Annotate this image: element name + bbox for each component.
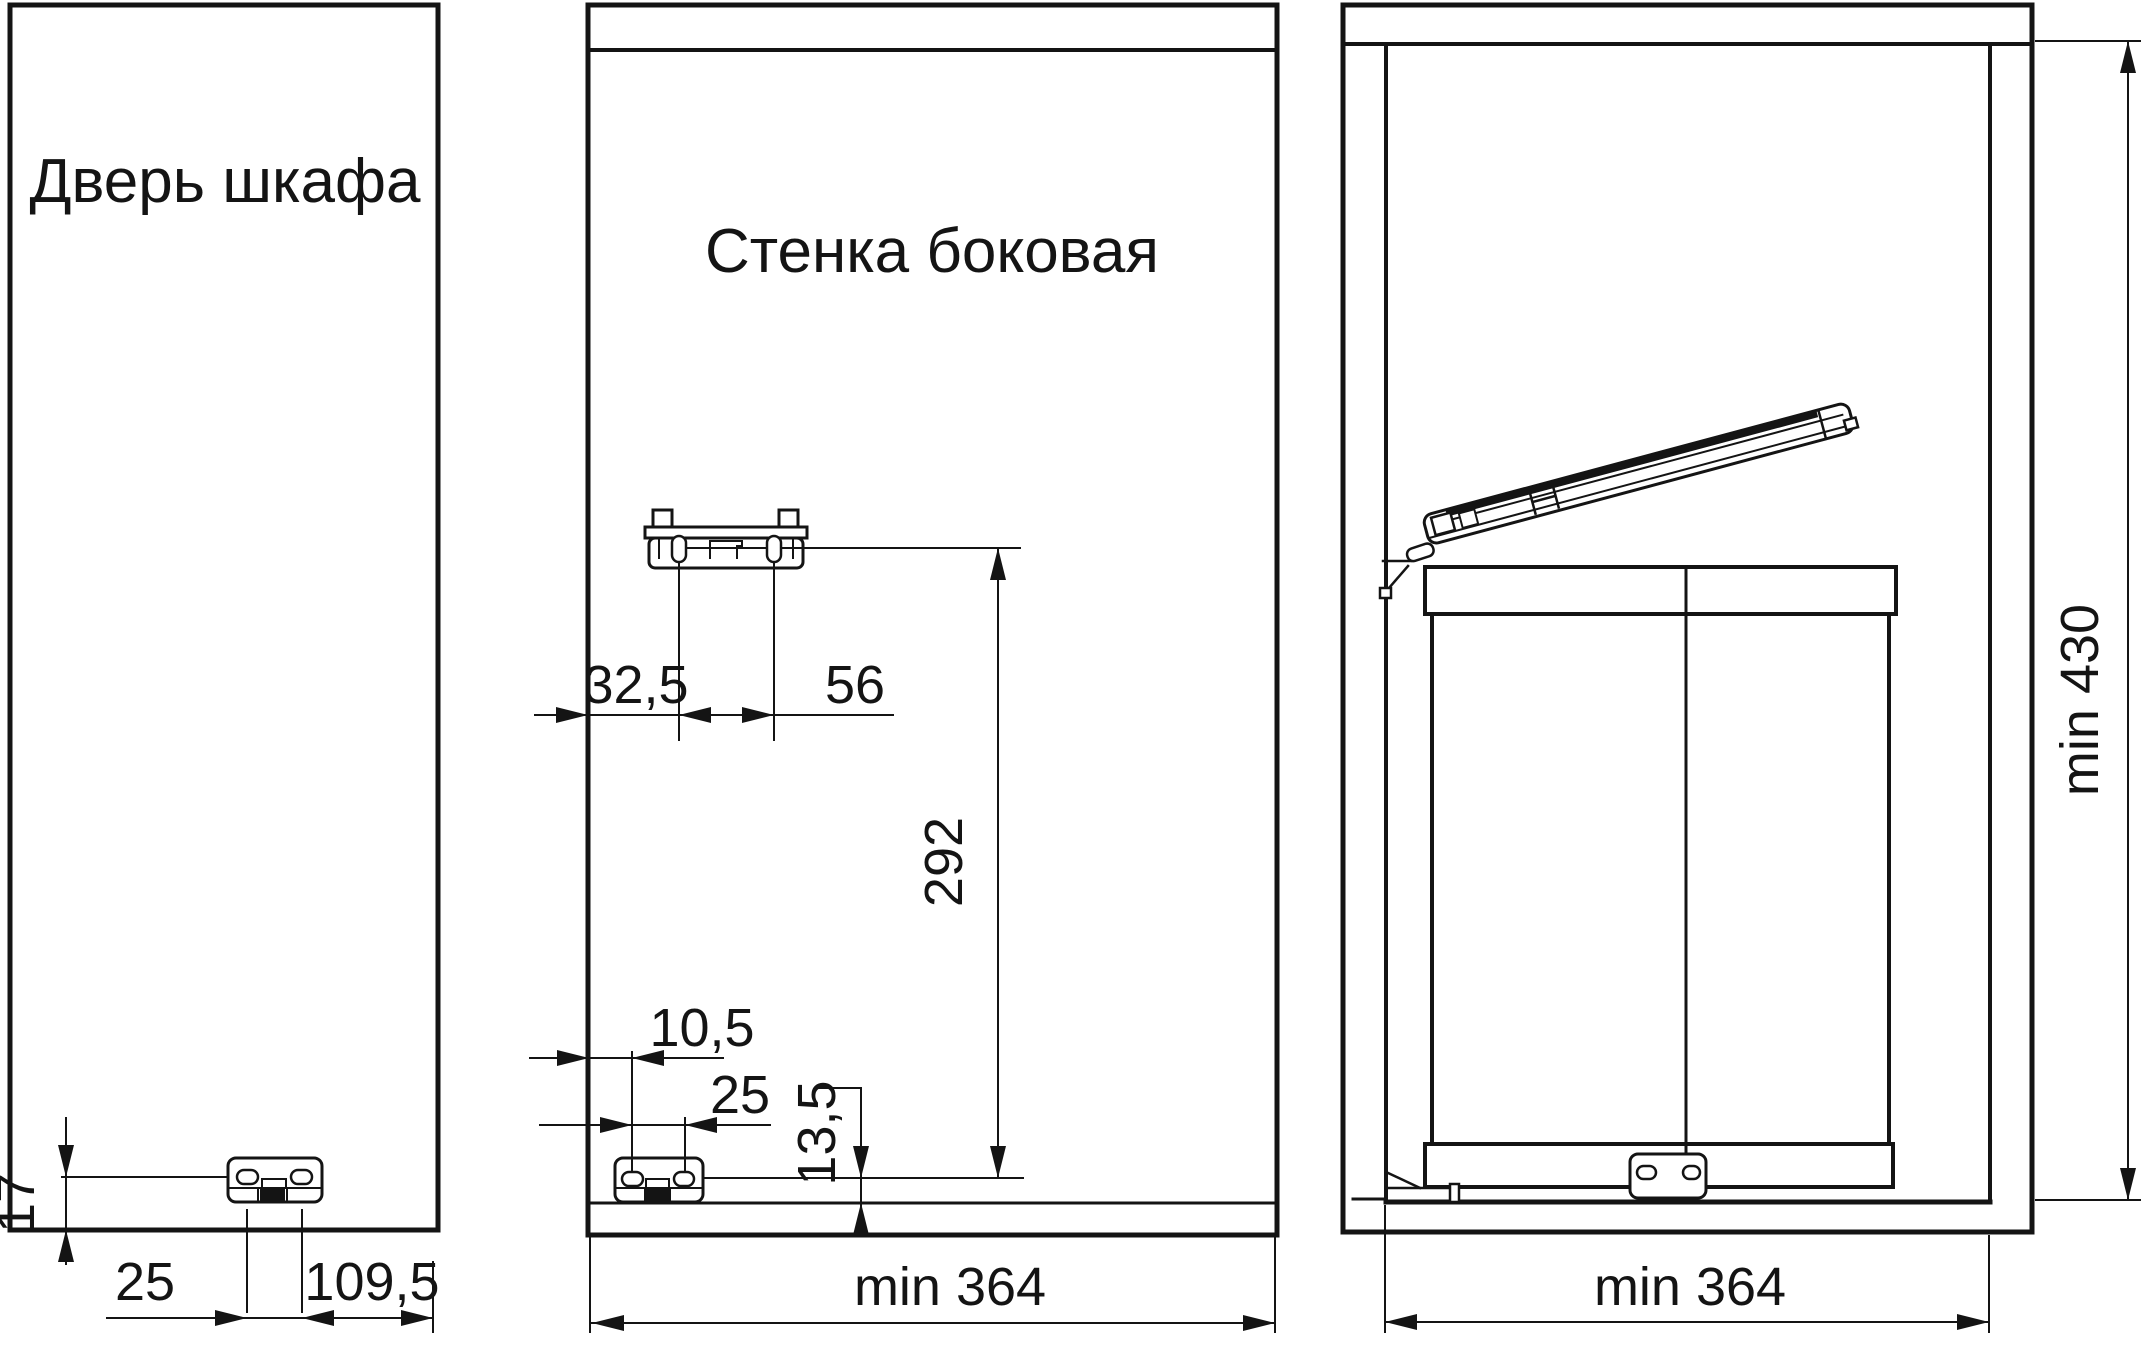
dimension-min364-side: min 364 <box>590 1238 1275 1332</box>
lid-hinge-block <box>1431 513 1455 536</box>
door-panel-view: Дверь шкафа 17 <box>0 5 440 1332</box>
dimension-25-side-label: 25 <box>710 1065 770 1125</box>
lower-bracket-hole-right <box>674 1172 694 1186</box>
dimension-292: 292 <box>914 548 1006 1178</box>
dimension-17-label: 17 <box>0 1173 46 1233</box>
dimension-25-door-label: 25 <box>115 1252 175 1312</box>
cabinet-view: min 430 min 364 <box>1343 5 2140 1332</box>
lid-top-edge <box>1445 410 1818 516</box>
upper-bracket-hole-left <box>672 536 686 562</box>
dimension-lower-bracket: 10,5 25 <box>530 998 770 1172</box>
dimension-min364-side-label: min 364 <box>854 1257 1046 1317</box>
bin-top-rim <box>1425 567 1896 614</box>
dimension-292-label: 292 <box>914 817 974 907</box>
upper-bracket-hole-right <box>767 536 781 562</box>
dimension-13-5-label: 13,5 <box>787 1080 847 1185</box>
side-wall-view: Стенка боковая 32,5 56 <box>530 5 1277 1332</box>
dimension-56-label: 56 <box>825 655 885 715</box>
lower-bracket-latch <box>645 1188 670 1202</box>
door-bracket-hole-left <box>237 1170 258 1184</box>
door-bracket <box>228 1158 322 1202</box>
dimension-109-5-label: 109,5 <box>304 1252 439 1312</box>
bin-base-bracket <box>1630 1154 1706 1198</box>
dimension-min430-label: min 430 <box>2050 604 2110 796</box>
door-bracket-hole-right <box>291 1170 312 1184</box>
installation-diagram: Дверь шкафа 17 <box>0 0 2144 1359</box>
bin-lid-open <box>1422 401 1859 545</box>
lower-bracket-hole-left <box>622 1172 643 1186</box>
lid-end-tab <box>1844 418 1858 431</box>
technical-drawing-canvas: Дверь шкафа 17 <box>0 0 2144 1359</box>
dimension-32-5-label: 32,5 <box>583 655 688 715</box>
dimension-min364-cabinet: min 364 <box>1385 1206 1989 1332</box>
upper-rail-bracket <box>645 510 1020 568</box>
waste-bin <box>1425 567 1896 1198</box>
floor-runner-bracket <box>1353 1172 1459 1202</box>
dimension-min430: min 430 <box>2036 41 2140 1200</box>
door-bracket-latch <box>260 1188 285 1202</box>
dimension-min364-cabinet-label: min 364 <box>1594 1257 1786 1317</box>
dimension-13-5: 13,5 <box>787 1080 869 1235</box>
side-wall-title: Стенка боковая <box>705 217 1159 286</box>
door-panel-title: Дверь шкафа <box>30 147 421 216</box>
dimension-10-5-label: 10,5 <box>649 998 754 1058</box>
